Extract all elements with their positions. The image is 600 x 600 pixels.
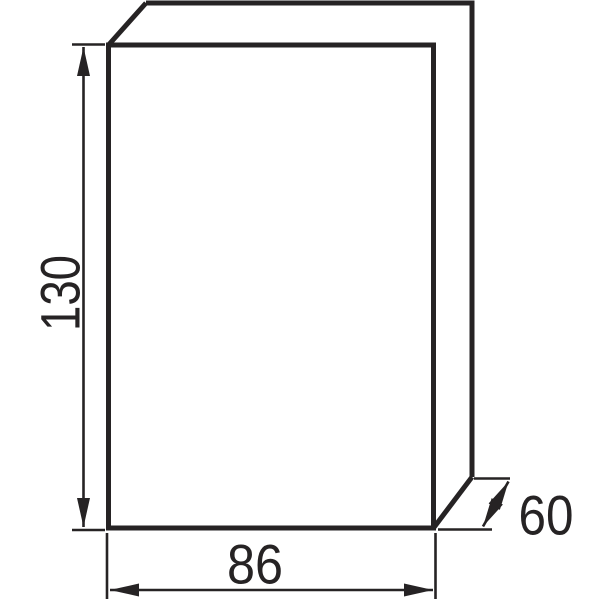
height-dimension-label: 130 [29,255,92,331]
depth-dimension-line [483,482,509,527]
box-front-face-outline [109,45,434,528]
box-back-top-and-right-edges [146,3,472,477]
depth-dimension-label: 60 [519,484,574,547]
box-bottom-right-depth-edge [434,477,473,528]
box-top-left-depth-edge [109,3,147,45]
box-dimension-drawing: 130 86 60 [0,0,600,600]
dimension-drawing-canvas: 130 86 60 [0,0,600,600]
width-dimension-label: 86 [227,533,283,596]
